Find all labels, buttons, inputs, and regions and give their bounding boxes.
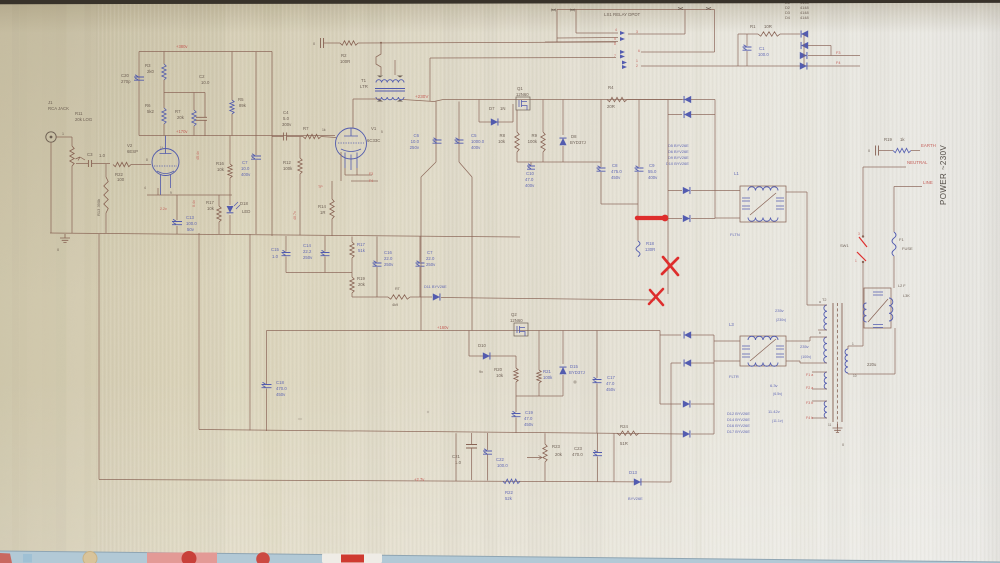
svg-text:R12: R12 <box>283 160 291 165</box>
svg-text:(230v): (230v) <box>776 318 786 322</box>
svg-text:C13: C13 <box>186 215 194 220</box>
svg-text:2k0: 2k0 <box>147 69 155 74</box>
svg-text:F3: F3 <box>836 51 840 55</box>
svg-text:C3: C3 <box>87 152 93 157</box>
svg-text:C14: C14 <box>303 243 311 248</box>
svg-text:50v: 50v <box>187 227 195 232</box>
svg-text:C9: C9 <box>649 163 655 168</box>
svg-text:C5: C5 <box>471 133 477 138</box>
svg-text:LED: LED <box>242 209 250 214</box>
svg-text:0.4v: 0.4v <box>192 200 196 207</box>
svg-text:0: 0 <box>57 248 59 252</box>
svg-text:a: a <box>819 300 821 304</box>
svg-text:R18: R18 <box>646 241 654 246</box>
svg-text:89k: 89k <box>239 103 247 108</box>
svg-text:(100v): (100v) <box>801 355 811 359</box>
svg-text:2.2v: 2.2v <box>160 207 167 211</box>
svg-text:400v: 400v <box>471 145 481 150</box>
svg-text:1: 1 <box>62 132 64 136</box>
svg-text:220u: 220u <box>867 362 877 367</box>
svg-text:51k: 51k <box>358 248 366 253</box>
svg-text:L3: L3 <box>729 322 734 327</box>
svg-text:FLTN: FLTN <box>730 232 740 237</box>
svg-text:D18: D18 <box>240 201 248 206</box>
svg-text:4: 4 <box>144 186 146 190</box>
svg-text:C6: C6 <box>414 133 420 138</box>
svg-text:D5 BYV26E: D5 BYV26E <box>668 143 689 148</box>
svg-text:8: 8 <box>146 158 148 162</box>
svg-text:T2: T2 <box>822 298 826 302</box>
svg-text:450v: 450v <box>606 387 616 392</box>
svg-text:5: 5 <box>381 130 383 134</box>
svg-text:100.0: 100.0 <box>497 463 508 468</box>
svg-text:EARTH: EARTH <box>921 143 936 148</box>
svg-text:0: 0 <box>842 443 844 447</box>
svg-text:1: 1 <box>636 59 638 63</box>
svg-text:+2.7v: +2.7v <box>414 477 425 482</box>
svg-text:250v: 250v <box>303 255 313 260</box>
svg-text:R14: R14 <box>318 204 326 209</box>
svg-text:D15: D15 <box>570 364 578 369</box>
svg-text:0: 0 <box>313 42 315 46</box>
svg-text:4148: 4148 <box>800 15 809 20</box>
svg-text:C22: C22 <box>496 457 504 462</box>
svg-text:5.0: 5.0 <box>283 116 290 121</box>
svg-text:C15: C15 <box>271 247 279 252</box>
svg-text:400v: 400v <box>525 183 535 188</box>
svg-text:R17: R17 <box>357 242 365 247</box>
svg-text:FLTR: FLTR <box>729 374 739 379</box>
svg-text:9v: 9v <box>479 370 483 374</box>
svg-text:D10 BYV26E: D10 BYV26E <box>666 161 689 166</box>
svg-text:L2 F: L2 F <box>898 284 906 288</box>
svg-text:+380v: +380v <box>176 44 188 49</box>
svg-text:R21: R21 <box>543 369 551 374</box>
svg-text:12N60: 12N60 <box>510 318 523 323</box>
svg-text:C4: C4 <box>283 110 289 115</box>
svg-text:10k: 10k <box>496 373 504 378</box>
svg-text:F2 a: F2 a <box>806 386 813 390</box>
svg-text:R24: R24 <box>620 424 628 429</box>
svg-text:C18: C18 <box>276 380 284 385</box>
svg-text:9: 9 <box>170 191 172 195</box>
svg-text:FUSE: FUSE <box>902 246 913 251</box>
svg-text:2: 2 <box>636 64 638 68</box>
svg-text:4k9: 4k9 <box>392 303 398 307</box>
svg-text:R13 390k: R13 390k <box>96 199 101 216</box>
svg-text:D17 BYV26E: D17 BYV26E <box>727 429 750 434</box>
svg-text:270p: 270p <box>121 79 131 84</box>
svg-text:D13: D13 <box>629 470 637 475</box>
svg-text:R19: R19 <box>357 276 365 281</box>
svg-text:20R: 20R <box>607 104 615 109</box>
svg-text:5: 5 <box>614 37 616 41</box>
svg-text:C7: C7 <box>242 160 248 165</box>
svg-text:+170v: +170v <box>176 129 188 134</box>
svg-text:F1 a: F1 a <box>806 373 813 377</box>
svg-text:100k: 100k <box>528 139 538 144</box>
svg-text:F4: F4 <box>369 179 373 183</box>
svg-text:D9 BYV26E: D9 BYV26E <box>668 155 689 160</box>
svg-text:R17: R17 <box>206 200 214 205</box>
svg-text:10k: 10k <box>217 167 225 172</box>
svg-text:1R: 1R <box>320 210 326 215</box>
svg-text:22.0: 22.0 <box>384 256 393 261</box>
svg-text:D11 BYV26E: D11 BYV26E <box>424 284 447 289</box>
svg-text:J1: J1 <box>48 100 53 105</box>
svg-text:10: 10 <box>853 374 857 378</box>
svg-text:Q1: Q1 <box>517 86 523 91</box>
svg-text:R6: R6 <box>145 103 151 108</box>
svg-text:22.0: 22.0 <box>426 256 435 261</box>
svg-text:250v: 250v <box>426 262 436 267</box>
svg-text:R7: R7 <box>175 109 181 114</box>
svg-text:6ESP: 6ESP <box>127 149 138 154</box>
svg-text:10.0: 10.0 <box>201 80 210 85</box>
svg-text:12N60: 12N60 <box>516 92 529 97</box>
svg-text:400v: 400v <box>648 175 658 180</box>
svg-text:100k: 100k <box>283 166 293 171</box>
svg-text:47.0: 47.0 <box>606 381 615 386</box>
svg-text:1.0: 1.0 <box>272 254 279 259</box>
svg-text:R19: R19 <box>884 137 892 142</box>
svg-text:450v: 450v <box>524 422 534 427</box>
svg-text:100.0: 100.0 <box>758 52 769 57</box>
svg-text:45.4v: 45.4v <box>196 151 200 160</box>
svg-text:C23: C23 <box>574 446 582 451</box>
svg-text:BYD37J: BYD37J <box>569 370 585 375</box>
svg-text:3: 3 <box>636 30 638 34</box>
svg-text:6C33C: 6C33C <box>367 138 380 143</box>
svg-text:470.0: 470.0 <box>572 452 583 457</box>
svg-text:R5: R5 <box>238 97 244 102</box>
svg-text:11.42v: 11.42v <box>768 409 780 414</box>
svg-text:D16 BYV26E: D16 BYV26E <box>727 423 750 428</box>
svg-text:L1: L1 <box>734 171 739 176</box>
svg-text:1.0: 1.0 <box>99 153 106 158</box>
svg-text:POWER ~230V: POWER ~230V <box>939 145 948 205</box>
svg-text:8: 8 <box>614 42 616 46</box>
svg-text:C19: C19 <box>525 410 533 415</box>
svg-text:BYV26E: BYV26E <box>628 496 643 501</box>
svg-text:R22: R22 <box>505 490 513 495</box>
svg-text:Q2: Q2 <box>511 312 517 317</box>
svg-text:10k: 10k <box>207 206 215 211</box>
svg-text:R23: R23 <box>552 444 560 449</box>
svg-text:+160v: +160v <box>437 325 449 330</box>
svg-text:475.0: 475.0 <box>611 169 622 174</box>
svg-text:C16: C16 <box>384 250 392 255</box>
svg-text:235v: 235v <box>775 308 784 313</box>
svg-text:D4: D4 <box>785 15 791 20</box>
svg-text:100k: 100k <box>543 375 553 380</box>
svg-text:R9: R9 <box>532 133 538 138</box>
svg-text:55.0: 55.0 <box>648 169 657 174</box>
svg-text:V1: V1 <box>371 126 377 131</box>
svg-text:C2: C2 <box>199 74 205 79</box>
svg-text:10.0: 10.0 <box>411 139 420 144</box>
svg-text:1: 1 <box>852 342 854 346</box>
svg-text:RCA JACK: RCA JACK <box>48 106 69 111</box>
svg-text:C1: C1 <box>759 46 765 51</box>
svg-text:T1: T1 <box>361 78 367 83</box>
svg-text:R2: R2 <box>341 53 347 58</box>
svg-text:20k: 20k <box>177 115 185 120</box>
svg-text:6.3v: 6.3v <box>770 383 778 388</box>
svg-text:400v: 400v <box>241 172 251 177</box>
svg-text:(11.1v): (11.1v) <box>772 419 783 423</box>
svg-text:450v: 450v <box>276 392 286 397</box>
svg-text:11: 11 <box>828 423 832 427</box>
svg-text:R16: R16 <box>216 161 224 166</box>
svg-text:22.2: 22.2 <box>303 249 312 254</box>
svg-text:20k LOG: 20k LOG <box>75 117 93 122</box>
svg-text:450v: 450v <box>611 175 621 180</box>
svg-text:BYD37J: BYD37J <box>570 140 586 145</box>
svg-text:R7: R7 <box>303 126 309 131</box>
svg-text:100.0: 100.0 <box>186 221 197 226</box>
svg-text:130R: 130R <box>645 247 655 252</box>
svg-text:(6.5v): (6.5v) <box>773 392 782 396</box>
svg-text:SW1: SW1 <box>840 243 849 248</box>
svg-text:D14 BYV26E: D14 BYV26E <box>727 417 750 422</box>
svg-text:1000.0: 1000.0 <box>471 139 485 144</box>
svg-text:F1: F1 <box>899 237 904 242</box>
svg-text:R8: R8 <box>500 133 506 138</box>
svg-text:C17: C17 <box>607 375 615 380</box>
svg-text:D6 BYV26E: D6 BYV26E <box>668 149 689 154</box>
svg-text:LS1 RELAY DPDT: LS1 RELAY DPDT <box>604 12 641 17</box>
svg-text:1N: 1N <box>500 106 506 111</box>
svg-text:+230V: +230V <box>415 94 429 99</box>
svg-text:20k: 20k <box>358 282 366 287</box>
svg-text:6: 6 <box>638 49 640 53</box>
svg-text:470.0: 470.0 <box>276 386 287 391</box>
svg-text:L3K: L3K <box>903 294 910 298</box>
svg-text:R11: R11 <box>75 111 83 116</box>
svg-text:3: 3 <box>858 232 860 236</box>
svg-text:R4: R4 <box>608 85 614 90</box>
svg-text:10R: 10R <box>764 24 772 29</box>
svg-text:20k: 20k <box>555 452 563 457</box>
svg-text:10.0: 10.0 <box>241 166 250 171</box>
svg-text:7: 7 <box>614 54 616 58</box>
svg-text:5k2: 5k2 <box>147 109 155 114</box>
svg-text:LINE: LINE <box>923 180 933 185</box>
svg-text:0: 0 <box>868 149 870 153</box>
svg-text:V2: V2 <box>127 143 133 148</box>
svg-text:R1: R1 <box>750 24 756 29</box>
svg-text:10k: 10k <box>498 139 506 144</box>
svg-text:b: b <box>819 331 821 335</box>
svg-text:235v: 235v <box>800 344 809 349</box>
svg-text:D8: D8 <box>571 134 577 139</box>
svg-text:40.7v: 40.7v <box>293 211 297 220</box>
svg-text:F4 b: F4 b <box>806 416 813 420</box>
svg-text:D10: D10 <box>478 343 486 348</box>
svg-text:F4: F4 <box>836 61 840 65</box>
svg-text:NEUTRAL: NEUTRAL <box>907 160 928 165</box>
svg-text:D7: D7 <box>489 106 495 111</box>
svg-text:51R: 51R <box>620 441 628 446</box>
svg-text:TP: TP <box>318 185 323 189</box>
svg-text:LTR: LTR <box>360 84 368 89</box>
svg-text:R20: R20 <box>494 367 502 372</box>
svg-text:100R: 100R <box>340 59 350 64</box>
svg-text:52k: 52k <box>505 496 513 501</box>
svg-text:47.0: 47.0 <box>524 416 533 421</box>
svg-text:300v: 300v <box>282 122 292 127</box>
svg-text:C8: C8 <box>612 163 618 168</box>
svg-text:C20: C20 <box>121 73 129 78</box>
svg-text:4: 4 <box>615 28 617 32</box>
svg-text:250v: 250v <box>410 145 420 150</box>
svg-text:C10: C10 <box>526 171 534 176</box>
svg-text:250v: 250v <box>384 262 394 267</box>
svg-text:F3: F3 <box>369 172 373 176</box>
svg-text:1: 1 <box>855 259 857 263</box>
svg-text:F3 b: F3 b <box>806 401 813 405</box>
svg-text:D12 BYV26E: D12 BYV26E <box>727 411 750 416</box>
svg-text:R3: R3 <box>145 63 151 68</box>
svg-text:C7: C7 <box>427 250 433 255</box>
svg-text:1k: 1k <box>322 128 326 132</box>
svg-text:100: 100 <box>117 177 125 182</box>
svg-text:47.0: 47.0 <box>525 177 534 182</box>
svg-text:RT: RT <box>395 287 401 291</box>
